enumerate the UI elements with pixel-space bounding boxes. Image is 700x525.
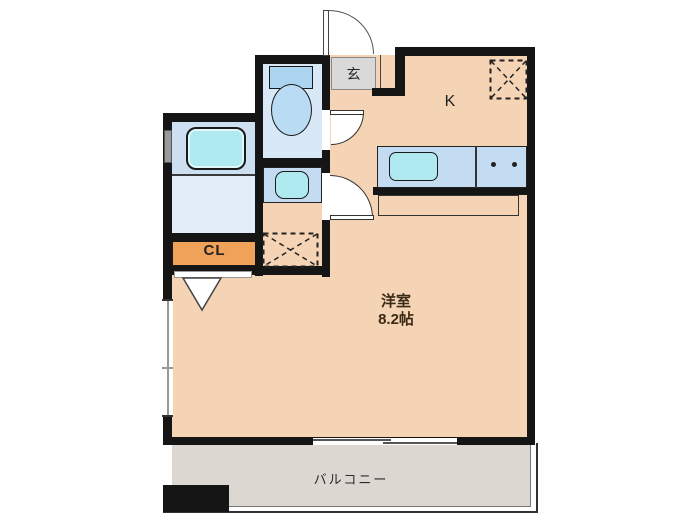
washing-machine-space-dashed-box xyxy=(262,232,319,268)
wall-kitchen-counter xyxy=(373,187,535,195)
wall-nook-bottom xyxy=(372,88,405,96)
bath-window xyxy=(164,130,172,163)
washbasin-icon xyxy=(275,171,309,199)
kitchen-sink-icon xyxy=(389,152,438,181)
room-side-window-tick xyxy=(162,367,173,369)
wall-right xyxy=(527,47,535,445)
refrigerator-space-dashed-box xyxy=(489,59,528,100)
entrance-door-arc xyxy=(329,10,374,54)
room-side-window-mullion xyxy=(167,301,169,415)
wall-top-left xyxy=(255,55,330,64)
toilet-door-leaf xyxy=(330,110,364,115)
wall-top-right xyxy=(395,47,535,56)
kitchen-counter-divider xyxy=(475,146,477,188)
balcony-sliding-window-pane-left xyxy=(313,439,391,441)
entrance-label: 玄 xyxy=(331,64,376,84)
wall-bath-closet xyxy=(163,233,263,242)
entrance-door-leaf xyxy=(323,10,329,56)
main-room-label: 洋室 8.2帖 xyxy=(358,293,434,329)
washroom-door-leaf xyxy=(330,215,374,220)
toilet-doorway-gap xyxy=(322,110,330,150)
floor-plan: バルコニー CL 玄 xyxy=(0,0,700,525)
main-room-name: 洋室 xyxy=(358,293,434,311)
main-room-size: 8.2帖 xyxy=(358,311,434,329)
toilet-bowl-icon xyxy=(271,84,312,136)
balcony-wall-block xyxy=(163,485,229,512)
kitchen-label: K xyxy=(435,93,465,111)
bathroom-divider-line xyxy=(172,174,255,176)
balcony-label: バルコニー xyxy=(172,469,530,488)
wall-toilet-washroom xyxy=(255,158,330,167)
washroom-doorway-gap xyxy=(322,173,330,220)
kitchen-bar-counter xyxy=(378,195,519,216)
closet-label: CL xyxy=(172,242,257,259)
entrance-nook xyxy=(380,55,395,89)
bathroom-lower-area xyxy=(172,175,255,233)
closet-door-triangle xyxy=(180,277,224,313)
two-burner-stove-icon xyxy=(491,162,496,167)
balcony-sliding-window-pane-right xyxy=(383,442,457,444)
two-burner-stove-icon-2 xyxy=(512,162,517,167)
bathtub-icon xyxy=(186,127,246,170)
wall-bath-top xyxy=(163,113,263,122)
